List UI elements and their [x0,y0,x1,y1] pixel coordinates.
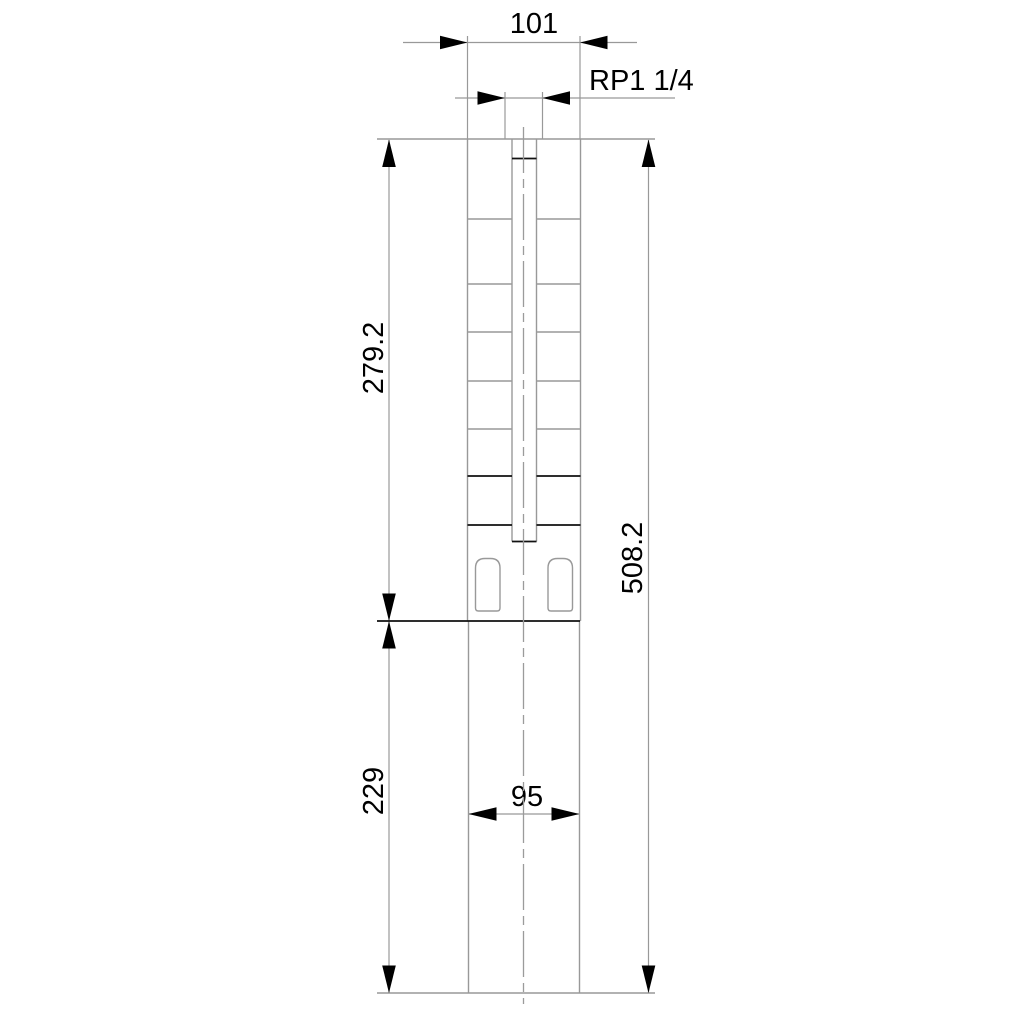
dimension-discharge-thread: RP1 1/4 [455,65,694,139]
cable-guard-slot-left [476,559,501,612]
dimension-overall-length: 508.2 [617,140,655,994]
arrow-down-icon [642,966,656,994]
arrow-up-icon [382,621,396,649]
discharge-thread-label: RP1 1/4 [589,65,694,97]
arrow-up-icon [382,140,396,168]
arrow-up-icon [642,140,656,168]
arrow-down-icon [382,594,396,622]
reference-lines [377,139,655,993]
arrow-right-icon [552,807,580,821]
pump-dimension-drawing: 101 RP1 1/4 279.2 229 508.2 [0,0,1024,1024]
riser-pipe [512,139,537,542]
pump-end-length-label: 279.2 [358,322,390,395]
motor-width-label: 95 [511,781,543,813]
arrow-left-icon [580,36,608,49]
dimension-drawing-page: 101 RP1 1/4 279.2 229 508.2 [0,0,1024,1024]
overall-length-label: 508.2 [617,522,649,595]
top-width-label: 101 [510,8,558,40]
dimension-left-chain: 279.2 229 [358,140,396,994]
arrow-right-icon [440,36,468,49]
arrow-left-icon [543,91,571,105]
arrow-down-icon [382,966,396,994]
arrow-right-icon [478,91,506,105]
cable-guard-slot-right [548,559,573,612]
arrow-left-icon [469,807,497,821]
motor-length-label: 229 [358,767,390,815]
